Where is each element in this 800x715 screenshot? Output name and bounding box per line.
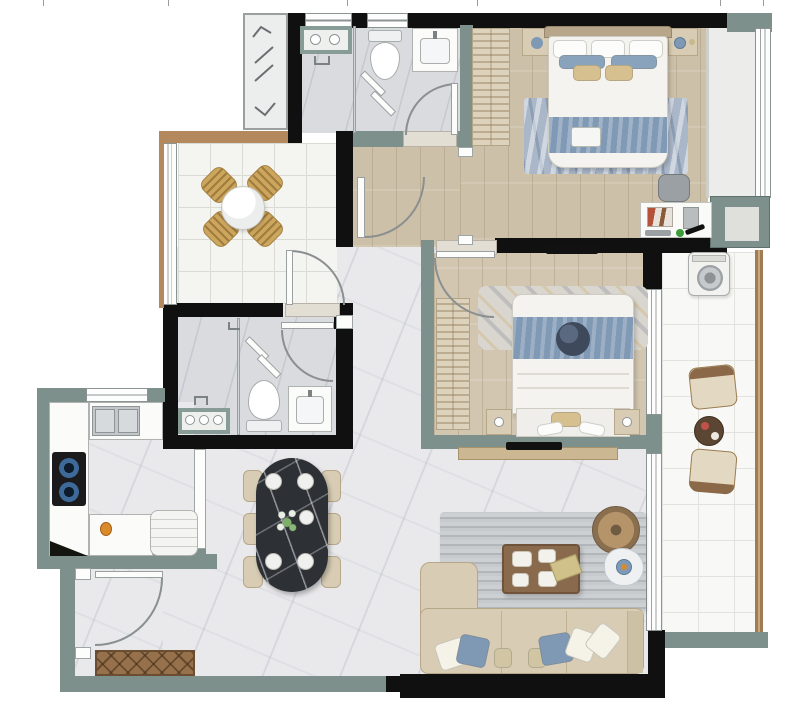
living-tv <box>506 442 562 450</box>
wall-kitchen-left <box>37 388 49 568</box>
master-nightstand-right <box>668 28 698 56</box>
cushion-tan-2 <box>605 65 633 81</box>
wall-bath2-bottom <box>163 435 353 449</box>
bedroom2-pillow-white-1 <box>536 421 564 437</box>
bath1-sink-counter <box>412 28 458 72</box>
sofa-pillow-small-1 <box>494 648 512 668</box>
nook-threshold <box>285 303 340 317</box>
nook-window <box>163 143 177 305</box>
vanity-hole-2 <box>199 415 209 425</box>
wall-top-2 <box>408 13 455 28</box>
coffee-table <box>502 544 580 594</box>
wall-bottom-joint <box>386 676 400 692</box>
side-table <box>604 548 644 586</box>
desk-keyboard <box>645 230 671 236</box>
kitchen-double-sink <box>92 406 140 436</box>
bowl-fruit <box>621 564 627 570</box>
bath1-faucet-icon <box>314 56 330 65</box>
master-door-frame-top <box>458 147 473 157</box>
washing-machine <box>688 252 730 296</box>
wall-bath2-left <box>163 303 178 449</box>
tray-1 <box>512 551 532 567</box>
bathroom1-door-leaf <box>451 83 458 135</box>
fridge <box>150 510 198 556</box>
master-bed-runner <box>549 117 667 153</box>
nook-window-wall-top <box>159 131 288 143</box>
nightstand-decor-small <box>689 39 695 45</box>
bathroom2-door-leaf <box>281 322 334 329</box>
sofa-pillow-blue-1 <box>455 633 491 669</box>
washer-drum <box>697 265 723 291</box>
bedroom2-balcony-slider <box>646 289 662 415</box>
bathroom1-window-right <box>367 13 408 28</box>
washer-control-panel <box>692 255 726 262</box>
nightstand-decor <box>531 37 543 49</box>
wall-master-bedroom2 <box>495 238 727 253</box>
dimension-tick <box>477 0 478 6</box>
bath2-sink-counter <box>288 386 332 432</box>
plate-2 <box>297 473 314 490</box>
kitchen-window <box>86 388 148 402</box>
bath2-toilet-tank <box>246 420 282 432</box>
wall-entry-bottom <box>60 676 386 692</box>
doormat <box>95 650 195 676</box>
armchair-back <box>689 365 734 380</box>
bedroom2-nightstand-left <box>486 409 512 435</box>
entry-door-frame-top <box>75 568 91 580</box>
flower-centerpiece <box>274 506 300 536</box>
bedroom2-door-leaf <box>436 251 495 258</box>
shaft-symbol-icon <box>245 15 286 128</box>
sink-basin-left <box>95 409 115 433</box>
nightstand-decor <box>674 37 686 49</box>
dimension-tick <box>720 0 721 6</box>
bath1-toilet-tank <box>368 30 402 42</box>
desk-artwork <box>647 207 673 227</box>
entry-door-frame-bottom <box>75 647 91 659</box>
bed-tray <box>571 127 601 147</box>
plate-3 <box>265 553 282 570</box>
bathroom2-door-frame <box>336 315 353 329</box>
wall-slider-jamb <box>646 415 662 453</box>
plate-4 <box>297 553 314 570</box>
master-door-leaf <box>357 177 365 238</box>
bath1-sink-faucet <box>433 31 437 39</box>
wall-bedroom2-left <box>421 240 434 448</box>
living-balcony-slider <box>646 453 662 631</box>
wall-bedroom2-right-top <box>643 253 662 289</box>
wall-bath1-bottom-left <box>353 131 403 147</box>
cushion-tan-1 <box>573 65 601 81</box>
plate-5 <box>299 510 314 525</box>
wall-kitchen-top-1 <box>49 388 86 402</box>
bay-window-floor <box>708 28 756 198</box>
wall-bottom <box>400 674 665 698</box>
bath1-laundry-counter <box>300 26 352 54</box>
bath1-shower-partition <box>353 26 356 133</box>
master-door-frame-bottom <box>458 235 473 245</box>
wall-bath1-bottom-right <box>457 131 473 147</box>
bedroom2-bed <box>512 294 634 414</box>
wall-entry-left <box>60 568 75 676</box>
shaft-box <box>243 13 288 130</box>
bath2-sink-basin <box>296 396 324 424</box>
nightstand-knob <box>494 417 504 427</box>
counter-hole-2 <box>329 34 340 45</box>
bedroom2-bed-foot <box>516 408 630 437</box>
bath1-sink-basin <box>420 38 450 64</box>
nook-round-table <box>221 186 265 230</box>
wall-bath2-right <box>336 329 353 449</box>
bedroom2-tv <box>546 244 598 254</box>
bath2-vanity-counter <box>178 408 230 434</box>
bedroom2-pillow-white-2 <box>578 420 606 437</box>
bath2-shower-partition <box>237 318 240 435</box>
balcony-railing <box>755 250 763 632</box>
sofa-armrest <box>627 611 643 673</box>
wall-kitchen-bottom <box>37 554 217 569</box>
master-wardrobe <box>472 28 510 146</box>
dining-table <box>256 458 328 592</box>
bath2-faucet-icon <box>194 396 208 405</box>
wall-bath2-top <box>163 303 283 317</box>
floor-plan <box>0 0 800 715</box>
desk-plant <box>676 229 684 237</box>
bedroom2-wardrobe <box>436 298 470 430</box>
vanity-hole-1 <box>185 415 195 425</box>
entry-door-leaf <box>95 571 163 578</box>
bay-window-sill-line <box>706 28 709 198</box>
master-desk <box>640 202 712 238</box>
bath2-toilet-bowl <box>248 380 280 420</box>
floor-lamp <box>592 506 640 554</box>
balcony-armchair-1 <box>688 364 738 411</box>
balcony-armchair-2 <box>688 448 737 494</box>
vanity-hole-3 <box>213 415 223 425</box>
dimension-tick <box>43 0 44 6</box>
nook-door-leaf <box>286 250 293 305</box>
duct-box-inner <box>725 207 759 241</box>
dimension-tick <box>763 0 764 6</box>
tray-3 <box>512 573 529 587</box>
duvet-fold <box>517 373 629 375</box>
burner-2 <box>59 482 79 502</box>
bedroom2-round-pillow <box>556 322 590 356</box>
bedroom2-nightstand-right <box>614 409 640 435</box>
duct-box <box>710 196 770 248</box>
plate-1 <box>265 473 282 490</box>
master-bay-window-glazing <box>755 28 771 198</box>
master-ottoman <box>658 174 690 202</box>
tea-cup-2 <box>711 432 719 440</box>
wall-kitchen-top-2 <box>148 388 165 402</box>
balcony-tea-table <box>694 416 724 446</box>
wall-balcony-bottom <box>665 632 768 648</box>
tea-cup-1 <box>701 422 709 430</box>
counter-hole-1 <box>310 34 321 45</box>
bath2-shower-head-icon <box>228 322 240 330</box>
dimension-tick <box>347 0 348 6</box>
sink-basin-right <box>118 409 138 433</box>
bath2-sink-faucet <box>308 390 312 397</box>
duvet-fold <box>517 387 629 389</box>
nightstand-knob <box>622 417 632 427</box>
dimension-tick <box>168 0 169 6</box>
gas-cooktop <box>52 452 86 506</box>
kitchen-counter-bottom <box>89 514 153 556</box>
fruit-bowl <box>100 522 112 536</box>
master-bed <box>548 36 668 168</box>
burner-1 <box>59 458 79 478</box>
wall-nook-east <box>336 131 353 247</box>
